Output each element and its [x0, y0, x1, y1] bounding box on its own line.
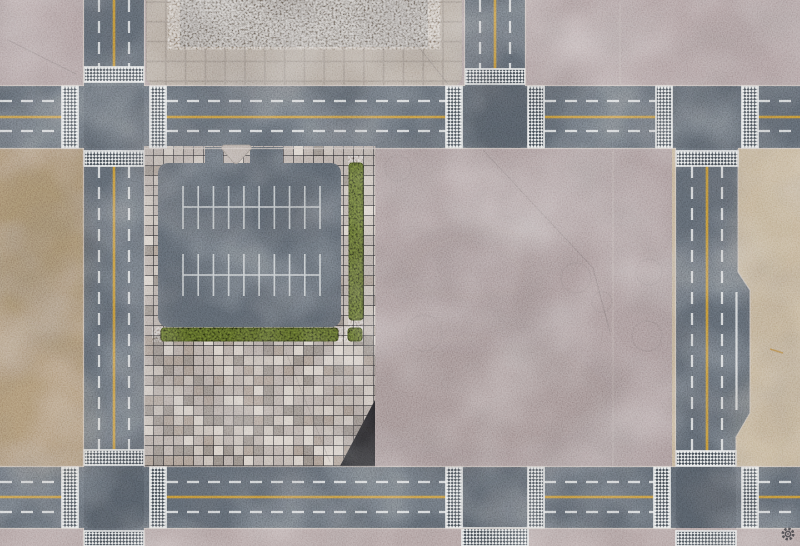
mat-stage [0, 0, 800, 546]
city-gaming-mat [0, 0, 800, 546]
texture-overlay-grain [0, 0, 800, 546]
